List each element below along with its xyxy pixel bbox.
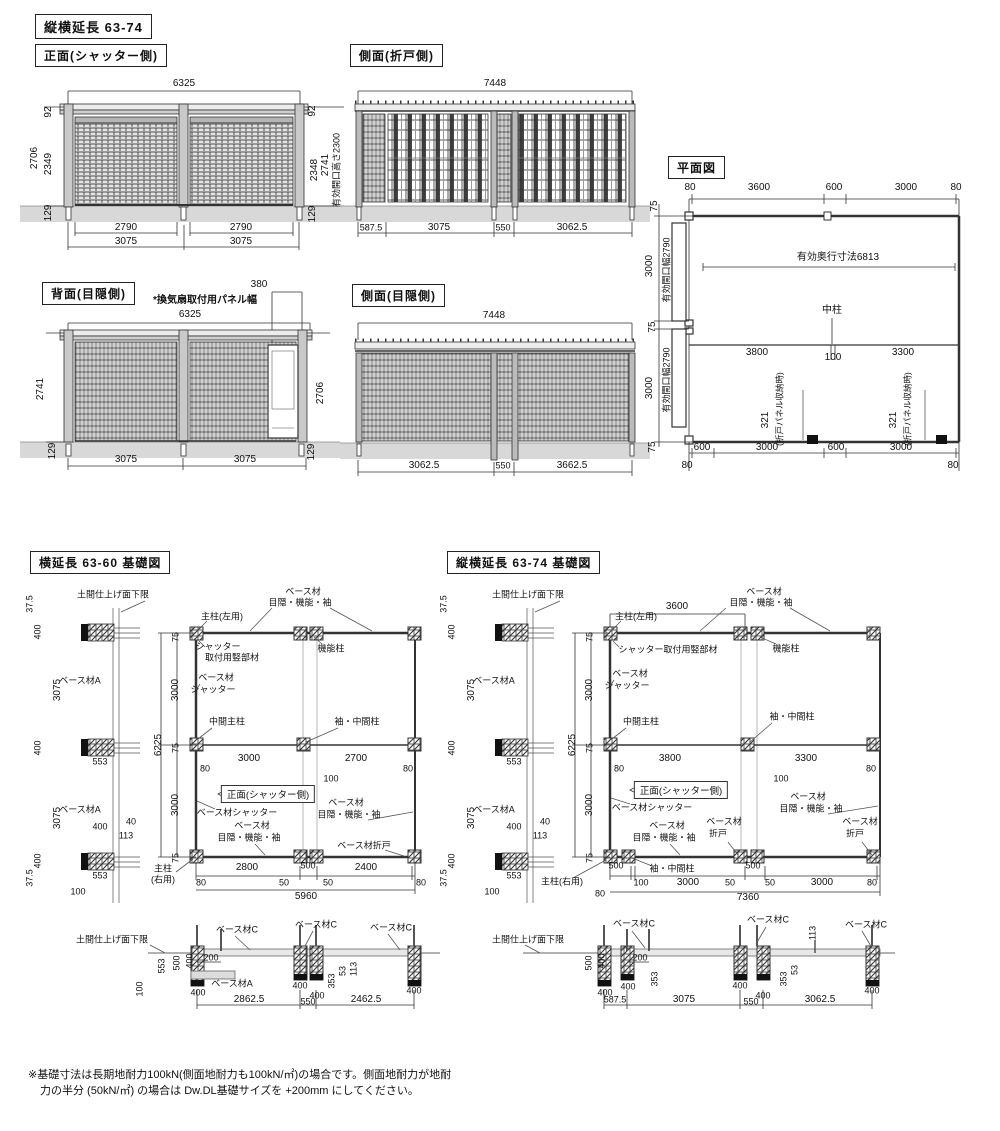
dim-plan-left-75c: 75 xyxy=(648,441,659,452)
label-fl-front-arrow: 正面(シャッター側) xyxy=(221,785,315,803)
dim-fl-strip-37-5b: 37.5 xyxy=(25,869,34,887)
dim-fl-v75c: 75 xyxy=(171,853,180,863)
label-fr-orido1b: 折戸 xyxy=(709,829,727,838)
dim-plan-top-80r: 80 xyxy=(950,183,961,194)
dim-front-width: 6325 xyxy=(173,79,195,90)
label-fr-front-arrow: 正面(シャッター側) xyxy=(634,781,728,799)
label-fr-sode-mid-post: 袖・中間柱 xyxy=(769,712,814,721)
dim-plan-bot-3000b: 3000 xyxy=(890,443,912,454)
dim-plan-left-3000b: 3000 xyxy=(645,377,656,399)
dim-plan-left-3000a: 3000 xyxy=(645,255,656,277)
dim-plan-bot-80r: 80 xyxy=(947,461,958,472)
dim-fr-strip-553m: 553 xyxy=(506,757,521,766)
label-fr-base-shutter2: シャッター xyxy=(604,681,649,690)
dim-fr-mid-80r: 80 xyxy=(866,764,876,773)
sheet-title: 縦横延長 63-74 xyxy=(35,14,152,39)
dim-fr-sec-113: 113 xyxy=(808,926,817,940)
dim-back-r129: 129 xyxy=(307,444,318,461)
dim-plan-left-75a: 75 xyxy=(650,200,661,211)
label-fr-base-mk3: ベース材 xyxy=(790,792,826,801)
label-fl-base-top2: 目隠・機能・袖 xyxy=(268,598,331,607)
label-fr-base-mk2: 目隠・機能・袖 xyxy=(632,833,695,842)
label-fr-orido2a: ベース材 xyxy=(842,817,878,826)
dim-fr-strip-37-5t: 37.5 xyxy=(439,595,448,613)
label-fl-baseA1: ベース材A xyxy=(59,676,101,685)
label-fr-base-top2: 目隠・機能・袖 xyxy=(729,598,792,607)
dim-fr-strip-400bb: 400 xyxy=(447,853,456,868)
dim-fr-mid-3300: 3300 xyxy=(795,754,817,765)
dim-fr-strip-553b: 553 xyxy=(506,871,521,880)
label-plan-center-post: 中柱 xyxy=(822,306,842,317)
front-view-drawing xyxy=(20,91,344,250)
dim-fl-v3000a: 3000 xyxy=(171,679,182,701)
dim-fl-chain-2400: 2400 xyxy=(355,863,377,874)
label-fr-sec-baseC1: ベース材C xyxy=(613,919,655,928)
dim-plan-fold1-321: 321 xyxy=(761,412,772,429)
dim-plan-top-3000: 3000 xyxy=(895,183,917,194)
label-fl-shutter-member2: 取付用竪部材 xyxy=(205,653,259,662)
dim-fr-chain-3000a: 3000 xyxy=(677,878,699,889)
dim-back-380: 380 xyxy=(251,280,268,291)
label-fr-sec-floor: 土間仕上げ面下限 xyxy=(492,935,564,944)
dim-fr-strip-400m: 400 xyxy=(447,740,456,755)
label-plan-fold2-note: (折戸パネル収納時) xyxy=(904,372,913,446)
label-fl-function-post: 機能柱 xyxy=(317,644,344,653)
dim-fl-v3000b: 3000 xyxy=(171,794,182,816)
label-fl-sode-mid-post: 袖・中間柱 xyxy=(334,717,379,726)
dim-fl-sec-2462: 2462.5 xyxy=(351,995,382,1006)
dim-fl-sec-353: 353 xyxy=(327,973,336,988)
dim-fl-sec-500: 500 xyxy=(172,955,181,970)
dim-fl-sec-550: 550 xyxy=(300,997,315,1006)
dim-fr-mid-3800: 3800 xyxy=(659,754,681,765)
dim-fl-mid-80r: 80 xyxy=(403,764,413,773)
label-fr-baseA1: ベース材A xyxy=(473,676,515,685)
dim-plan-top-600: 600 xyxy=(826,183,843,194)
dim-fl-sec-2862: 2862.5 xyxy=(234,995,265,1006)
dim-front-3075b: 3075 xyxy=(230,237,252,248)
dim-plan-mid-100: 100 xyxy=(825,353,842,364)
dim-fr-v3000a: 3000 xyxy=(585,679,596,701)
dim-fr-v75b: 75 xyxy=(585,743,594,753)
dim-fl-sec-100: 100 xyxy=(135,981,144,996)
dim-fl-sec-553: 553 xyxy=(157,958,166,973)
dim-sideprivacy-550: 550 xyxy=(495,461,510,470)
label-fr-sec-baseC2: ベース材C xyxy=(747,915,789,924)
label-fl-shutter-member1: シャッター xyxy=(195,642,240,651)
dim-fr-chain-3000b: 3000 xyxy=(811,878,833,889)
dim-fl-total-5960: 5960 xyxy=(295,892,317,903)
dim-fr-chain-80r: 80 xyxy=(867,878,877,887)
dim-fr-500b: 500 xyxy=(745,861,760,870)
dim-fr-strip-37-5b: 37.5 xyxy=(439,869,448,887)
dim-fr-sec-500: 500 xyxy=(584,955,593,970)
dim-front-3075a: 3075 xyxy=(115,237,137,248)
dim-back-3075b: 3075 xyxy=(234,455,256,466)
label-fl-base-mk4: 目隠・機能・袖 xyxy=(317,810,380,819)
label-fr-floor-limit: 土間仕上げ面下限 xyxy=(492,590,564,599)
dim-fr-v3000b: 3000 xyxy=(585,794,596,816)
label-fr-sec-baseC3: ベース材C xyxy=(845,920,887,929)
dim-front-l2349: 2349 xyxy=(44,153,55,175)
dim-fl-small-80r: 80 xyxy=(416,878,426,887)
dim-fr-sec-p400b: 400 xyxy=(620,982,635,991)
dim-fl-mid-2700: 2700 xyxy=(345,754,367,765)
dim-fr-sec-587: 587.5 xyxy=(604,995,627,1004)
dim-fl-v75a: 75 xyxy=(171,632,180,642)
dim-fr-sec-353a: 353 xyxy=(650,971,659,986)
dim-sidefold-587: 587.5 xyxy=(360,223,383,232)
dim-fl-strip-37-5t: 37.5 xyxy=(25,595,34,613)
dim-fl-sec-113: 113 xyxy=(349,962,358,976)
dim-front-r92: 92 xyxy=(308,105,319,116)
dim-fr-total-7360: 7360 xyxy=(737,893,759,904)
dim-front-2790b: 2790 xyxy=(230,223,252,234)
dim-fr-strip-100: 100 xyxy=(484,887,499,896)
dim-fr-strip-40: 40 xyxy=(540,817,550,826)
label-fr-function-post: 機能柱 xyxy=(772,644,799,653)
dim-plan-fold2-321: 321 xyxy=(889,412,900,429)
dim-sideprivacy-3062: 3062.5 xyxy=(409,461,440,472)
plan-view-drawing xyxy=(654,194,959,471)
label-fr-base-shutter1: ベース材 xyxy=(612,669,648,678)
dim-fl-sec-53: 53 xyxy=(338,966,347,976)
dim-fl-sec-400l: 400 xyxy=(185,953,194,968)
label-fl-sec-baseC1: ベース材C xyxy=(216,925,258,934)
label-fr-mid-main-post: 中間主柱 xyxy=(623,717,659,726)
dim-fl-mid-100: 100 xyxy=(323,774,338,783)
foundation-left-drawing xyxy=(81,601,440,1009)
dim-back-width: 6325 xyxy=(179,310,201,321)
dim-fr-chain-100: 100 xyxy=(633,878,648,887)
dim-fl-strip-400t: 400 xyxy=(33,624,42,639)
dim-fl-chain-500: 500 xyxy=(300,861,315,870)
label-fr-orido2b: 折戸 xyxy=(846,829,864,838)
label-plan-fold1-note: (折戸パネル収納時) xyxy=(776,372,785,446)
dim-back-3075a: 3075 xyxy=(115,455,137,466)
dim-fr-mid-100: 100 xyxy=(773,774,788,783)
dim-fr-chain-50b: 50 xyxy=(765,878,775,887)
label-fl-sec-floor: 土間仕上げ面下限 xyxy=(76,935,148,944)
dim-fl-mid-80l: 80 xyxy=(200,764,210,773)
dim-fr-top-3600: 3600 xyxy=(666,602,688,613)
label-fr-orido1a: ベース材 xyxy=(706,817,742,826)
dim-fr-500a: 500 xyxy=(608,861,623,870)
dim-front-opening-height: 有効開口高さ2300 xyxy=(332,133,341,207)
dim-plan-left-75b: 75 xyxy=(648,321,659,332)
dim-fr-chain-50a: 50 xyxy=(725,878,735,887)
dim-fl-small-50a: 50 xyxy=(279,878,289,887)
label-fl-mid-main-post: 中間主柱 xyxy=(209,717,245,726)
dim-fr-sec-353b: 353 xyxy=(779,971,788,986)
label-fl-sec-baseC2: ベース材C xyxy=(295,920,337,929)
dim-plan-mid-3300: 3300 xyxy=(892,348,914,359)
side-folddoor-title: 側面(折戸側) xyxy=(350,44,443,67)
foundation-left-title: 横延長 63-60 基礎図 xyxy=(30,551,170,574)
label-plan-depth: 有効奥行寸法6813 xyxy=(797,253,879,264)
footnote-line1: ※基礎寸法は長期地耐力100kN(側面地耐力も100kN/㎡)の場合です。側面地… xyxy=(28,1066,451,1082)
dim-fl-sec-p400a: 400 xyxy=(190,988,205,997)
label-fr-shutter-member: シャッター取付用竪部材 xyxy=(618,645,717,654)
back-view-title: 背面(目隠側) xyxy=(42,282,135,305)
label-fr-main-post-left: 主柱(左用) xyxy=(615,612,657,621)
dim-fl-strip-40: 40 xyxy=(126,817,136,826)
label-fr-base-mk1: ベース材 xyxy=(649,821,685,830)
dim-fl-v6225: 6225 xyxy=(154,734,165,756)
dim-front-r2348: 2348 xyxy=(310,159,321,181)
dim-plan-mid-3800: 3800 xyxy=(746,348,768,359)
dim-fl-sec-200: 200 xyxy=(203,953,218,962)
dim-front-l2706: 2706 xyxy=(30,147,41,169)
dim-fl-strip-553m: 553 xyxy=(92,757,107,766)
dim-sideprivacy-3662: 3662.5 xyxy=(557,461,588,472)
dim-plan-top-80l: 80 xyxy=(684,183,695,194)
label-back-vent-panel: *換気扇取付用パネル幅 xyxy=(153,296,257,307)
dim-fr-strip-400t: 400 xyxy=(447,624,456,639)
dim-fl-strip-400bb: 400 xyxy=(33,853,42,868)
dim-sidefold-3075: 3075 xyxy=(428,223,450,234)
dim-back-r2706: 2706 xyxy=(316,382,327,404)
dim-plan-bot-600a: 600 xyxy=(694,443,711,454)
dim-fl-sec-p400b: 400 xyxy=(292,981,307,990)
dim-fr-80-left: 80 xyxy=(595,889,605,898)
plan-view-title: 平面図 xyxy=(668,156,725,179)
dim-fl-chain-2800: 2800 xyxy=(236,863,258,874)
dim-fr-v75c: 75 xyxy=(585,853,594,863)
label-fr-baseA2: ベース材A xyxy=(473,805,515,814)
side-folddoor-drawing xyxy=(340,91,650,237)
dim-fr-v75a: 75 xyxy=(585,632,594,642)
dim-fr-mid-80l: 80 xyxy=(614,764,624,773)
dim-fl-strip-400b: 400 xyxy=(92,822,107,831)
dim-fr-strip-113: 113 xyxy=(533,831,547,840)
label-fl-baseA2: ベース材A xyxy=(59,805,101,814)
label-fl-base-mk3: ベース材 xyxy=(328,798,364,807)
label-fl-main-post-right2: (右用) xyxy=(151,875,175,884)
technical-drawing-sheet: 縦横延長 63-74 正面(シャッター側) 側面(折戸側) 平面図 背面(目隠側… xyxy=(0,0,1000,1131)
dim-fr-v6225: 6225 xyxy=(568,734,579,756)
label-fl-base-top1: ベース材 xyxy=(285,587,321,596)
dim-fr-strip-400b: 400 xyxy=(506,822,521,831)
dim-fr-sec-3075: 3075 xyxy=(673,995,695,1006)
label-plan-opening2: 有効開口幅2790 xyxy=(662,347,671,412)
label-fr-sode-bottom: 袖・中間柱 xyxy=(649,864,694,873)
dim-fr-sec-53: 53 xyxy=(790,965,799,975)
side-privacy-drawing xyxy=(340,323,650,476)
dim-sideprivacy-width: 7448 xyxy=(483,311,505,322)
dim-front-r129: 129 xyxy=(308,206,319,223)
dim-plan-bot-600b: 600 xyxy=(828,443,845,454)
label-fl-base-folddoor: ベース材折戸 xyxy=(337,841,391,850)
dim-fr-sec-p400c: 400 xyxy=(732,981,747,990)
dim-fl-sec-p400d: 400 xyxy=(406,986,421,995)
label-fl-main-post-right1: 主柱 xyxy=(154,864,172,873)
dim-fr-sec-200: 200 xyxy=(632,953,647,962)
label-fr-base-shutter-low: ベース材シャッター xyxy=(612,803,693,812)
dim-sidefold-550: 550 xyxy=(495,223,510,232)
label-fl-base-mk1: ベース材 xyxy=(234,821,270,830)
dim-front-l92: 92 xyxy=(44,106,55,117)
label-fl-base-mk2: 目隠・機能・袖 xyxy=(217,833,280,842)
dim-fr-sec-550: 550 xyxy=(743,997,758,1006)
dim-fl-strip-113: 113 xyxy=(119,831,133,840)
label-fl-sec-baseC3: ベース材C xyxy=(370,923,412,932)
dim-fl-small-80l: 80 xyxy=(196,878,206,887)
dim-fr-sec-3062: 3062.5 xyxy=(805,995,836,1006)
dim-back-l2741: 2741 xyxy=(36,378,47,400)
dim-fl-v75b: 75 xyxy=(171,743,180,753)
dim-fl-small-50b: 50 xyxy=(323,878,333,887)
front-view-title: 正面(シャッター側) xyxy=(35,44,167,67)
dim-plan-bot-80l: 80 xyxy=(681,461,692,472)
label-fl-main-post-left: 主柱(左用) xyxy=(201,612,243,621)
dim-plan-top-3600: 3600 xyxy=(748,183,770,194)
footnote-line2: 力の半分 (50kN/㎡) の場合は Dw.DL基礎サイズを +200mm にし… xyxy=(40,1082,419,1098)
dim-fr-sec-p400e: 400 xyxy=(864,986,879,995)
dim-fl-strip-100: 100 xyxy=(70,887,85,896)
label-fr-base-mk4: 目隠・機能・袖 xyxy=(779,804,842,813)
dim-fr-sec-400l: 400 xyxy=(597,953,606,968)
dim-fl-strip-400m: 400 xyxy=(33,740,42,755)
dim-sidefold-width: 7448 xyxy=(484,79,506,90)
label-fr-base-top1: ベース材 xyxy=(746,587,782,596)
label-fl-base-shutter1: ベース材 xyxy=(198,673,234,682)
dim-plan-bot-3000a: 3000 xyxy=(756,443,778,454)
foundation-right-title: 縦横延長 63-74 基礎図 xyxy=(447,551,600,574)
label-plan-opening1: 有効開口幅2790 xyxy=(662,237,671,302)
label-fl-floor-limit: 土間仕上げ面下限 xyxy=(77,590,149,599)
dim-sidefold-3062: 3062.5 xyxy=(557,223,588,234)
dim-back-l129: 129 xyxy=(48,443,59,460)
dim-front-r2741: 2741 xyxy=(321,154,332,176)
dim-fl-strip-553b: 553 xyxy=(92,871,107,880)
label-fl-base-shutter2: シャッター xyxy=(190,685,235,694)
label-fr-main-post-right: 主柱(右用) xyxy=(541,877,583,886)
label-fl-sec-baseA: ベース材A xyxy=(211,979,253,988)
label-fl-base-shutter-low: ベース材シャッター xyxy=(197,808,278,817)
dim-front-l129: 129 xyxy=(44,205,55,222)
dim-front-2790a: 2790 xyxy=(115,223,137,234)
dim-fl-mid-3000: 3000 xyxy=(238,754,260,765)
side-privacy-title: 側面(目隠側) xyxy=(352,284,445,307)
